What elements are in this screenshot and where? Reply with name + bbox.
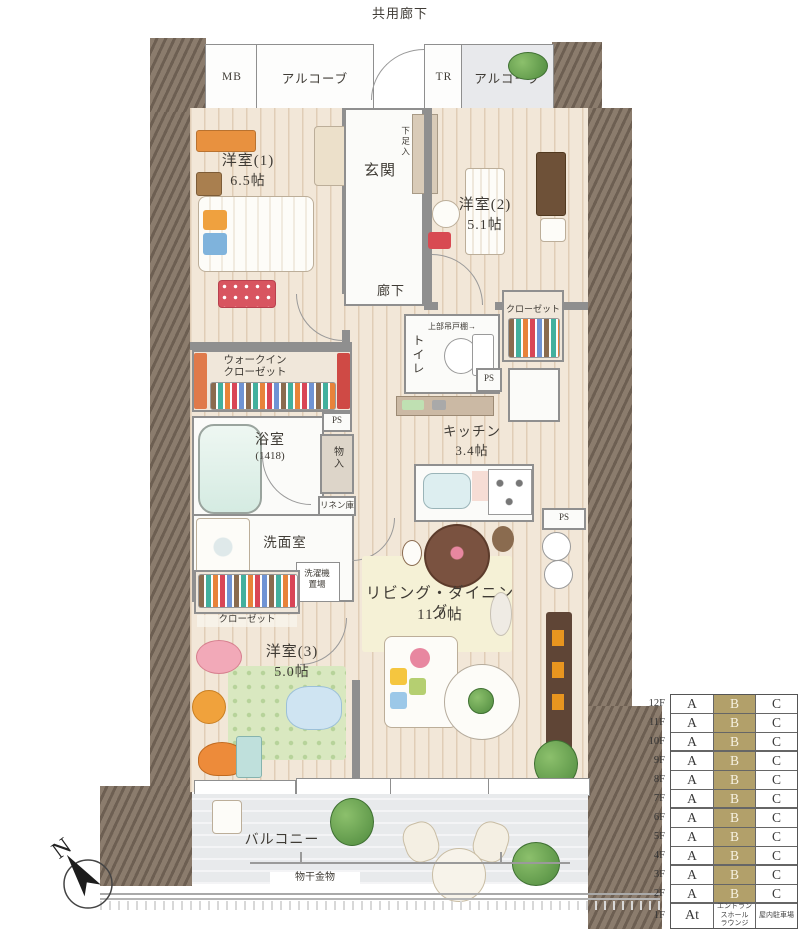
- unit-cell-12F-C: C: [756, 695, 797, 714]
- floor-label-8F: 8F: [640, 770, 667, 789]
- balcony-plant-left-illustration: [330, 798, 374, 846]
- unit-cell-6F-B: B: [714, 809, 756, 828]
- ps-toilet-label: PS: [476, 373, 502, 384]
- drying-tick-2: [500, 852, 502, 864]
- dining-stool-illustration: [402, 540, 422, 566]
- unit-cell-12F-B: B: [714, 695, 756, 714]
- closet-w2-label: クローゼット: [502, 304, 564, 315]
- kitchen-shelf-item2-illustration: [432, 400, 446, 410]
- unit-cell-10F-C: C: [756, 733, 797, 752]
- kitchen-stove-illustration: [488, 469, 532, 515]
- floor-table-floors: 12F11F10F9F8F7F6F5F4F3F2F1F: [640, 694, 667, 929]
- unit-cell-6F-A: A: [671, 809, 714, 828]
- unit-cell-2F-B: B: [714, 885, 756, 904]
- floor-label-5F: 5F: [640, 827, 667, 846]
- western2-size: 5.1帖: [430, 217, 540, 235]
- toilet-label: トイレ: [410, 334, 425, 376]
- unit-cell-4F-A: A: [671, 847, 714, 866]
- wic-label-2: クローゼット: [200, 366, 310, 379]
- floor-label-10F: 10F: [640, 732, 667, 751]
- unit-cell-9F-C: C: [756, 752, 797, 771]
- speaker-illustration: [236, 736, 262, 778]
- unit-cell-11F-B: B: [714, 714, 756, 733]
- ps-kitchen-label: PS: [542, 512, 586, 523]
- toy-blue-illustration: [286, 686, 342, 730]
- storage-label: 物入: [330, 446, 343, 470]
- floor-label-1F: 1F: [640, 903, 667, 927]
- floor-label-7F: 7F: [640, 789, 667, 808]
- wall-top-right: [552, 42, 602, 114]
- western1-label: 洋室(1): [193, 152, 303, 171]
- balcony-edge-line-1: [100, 893, 660, 895]
- western3-size: 5.0帖: [237, 664, 347, 682]
- entrance-label: 玄関: [344, 162, 416, 181]
- unit-cell-11F-C: C: [756, 714, 797, 733]
- kitchen-shelf-item1-illustration: [402, 400, 424, 410]
- kitchen-label: キッチン: [417, 424, 527, 441]
- cushion-green-illustration: [409, 678, 426, 695]
- compass-circle: [64, 860, 112, 908]
- laundry-label-2: 置場: [296, 579, 338, 590]
- unit-cell-1F-C: 屋内駐車場: [756, 904, 797, 928]
- unit-cell-3F-B: B: [714, 866, 756, 885]
- toilet-shelf-note: 上部吊戸棚→: [414, 322, 490, 332]
- alcove-left: アルコーブ: [256, 44, 374, 110]
- unit-cell-3F-C: C: [756, 866, 797, 885]
- trunk-room: TR: [424, 44, 464, 110]
- alcove-plant-illustration: [508, 52, 548, 80]
- table-plant-illustration: [468, 688, 494, 714]
- unit-cell-6F-C: C: [756, 809, 797, 828]
- floor-label-2F: 2F: [640, 884, 667, 903]
- laundry-label-1: 洗濯機: [296, 568, 338, 579]
- washroom-label: 洗面室: [230, 535, 340, 552]
- kitchen-sink-illustration: [423, 473, 471, 509]
- unit-cell-1F-B: エントランスホール ラウンジ: [714, 904, 756, 928]
- desk2-illustration: [536, 152, 566, 216]
- dining-table-illustration: [424, 524, 490, 588]
- shoe-cabinet-label: 下足入: [400, 126, 411, 158]
- floor-table-grid: ABCABCABCABCABCABCABCABCABCABCABCAtエントラン…: [670, 694, 798, 929]
- linen-label: リネン庫: [318, 500, 356, 511]
- dining-chair-illustration: [492, 526, 514, 552]
- closet-w2-clothes-illustration: [508, 318, 560, 358]
- wic-clothes-illustration: [210, 382, 336, 410]
- unit-cell-8F-A: A: [671, 771, 714, 790]
- unit-cell-11F-A: A: [671, 714, 714, 733]
- ps-bath-label: PS: [322, 415, 352, 426]
- unit-cell-7F-C: C: [756, 790, 797, 809]
- unit-cell-4F-B: B: [714, 847, 756, 866]
- balcony-plant-right-illustration: [512, 842, 560, 886]
- closet-w3-clothes-illustration: [198, 574, 298, 608]
- unit-cell-5F-B: B: [714, 828, 756, 847]
- wic-cabinet-right-illustration: [337, 353, 350, 409]
- unit-cell-4F-C: C: [756, 847, 797, 866]
- bathroom-label: 浴室: [218, 432, 322, 450]
- entrance-door-arc: [371, 49, 424, 100]
- balcony-edge-hatch: [100, 901, 660, 910]
- unit-cell-2F-A: A: [671, 885, 714, 904]
- drying-tick-1: [300, 852, 302, 864]
- tv-item3-illustration: [552, 694, 564, 710]
- unit-cell-10F-A: A: [671, 733, 714, 752]
- balcony-table-left-illustration: [212, 800, 242, 834]
- floor-label-4F: 4F: [640, 846, 667, 865]
- unit-cell-5F-A: A: [671, 828, 714, 847]
- kitchen-size: 3.4帖: [417, 443, 527, 459]
- balcony-edge-line-2: [100, 898, 660, 900]
- meter-box: MB: [205, 44, 259, 110]
- tv-item1-illustration: [552, 630, 564, 646]
- unit-cell-3F-A: A: [671, 866, 714, 885]
- chair-red-illustration: [428, 232, 451, 249]
- compass: N: [44, 826, 144, 926]
- meter-box-label: MB: [222, 71, 242, 83]
- wall-w3-right: [352, 680, 360, 792]
- side-table-round1-illustration: [542, 532, 571, 561]
- wall-right: [588, 108, 632, 710]
- cat-illustration: [490, 592, 512, 636]
- desk-illustration: [314, 126, 348, 186]
- wall-top-left: [150, 38, 206, 114]
- cabinet2-illustration: [540, 218, 566, 242]
- cushion-pink-illustration: [410, 648, 430, 668]
- hallway-label: 廊下: [364, 283, 418, 299]
- western2-label: 洋室(2): [430, 196, 540, 215]
- drying-rail-line: [250, 862, 570, 864]
- unit-cell-9F-A: A: [671, 752, 714, 771]
- unit-cell-7F-B: B: [714, 790, 756, 809]
- unit-cell-1F-A: At: [671, 904, 714, 928]
- trunk-room-label: TR: [436, 71, 453, 83]
- rug-illustration: [218, 280, 276, 308]
- cushion-blue-illustration: [390, 692, 407, 709]
- floor-label-3F: 3F: [640, 865, 667, 884]
- western3-label: 洋室(3): [237, 643, 347, 662]
- wall-w1-bottom: [190, 342, 352, 350]
- unit-cell-10F-B: B: [714, 733, 756, 752]
- floor-label-12F: 12F: [640, 694, 667, 713]
- closet-w3-label: クローゼット: [197, 615, 297, 627]
- unit-cell-12F-A: A: [671, 695, 714, 714]
- pillow-orange-illustration: [203, 210, 227, 230]
- alcove-left-label: アルコーブ: [282, 68, 348, 87]
- balcony-label: バルコニー: [237, 832, 327, 850]
- unit-cell-8F-B: B: [714, 771, 756, 790]
- cushion-yellow-illustration: [390, 668, 407, 685]
- side-table-round2-illustration: [544, 560, 573, 589]
- floor-label-6F: 6F: [640, 808, 667, 827]
- common-corridor-label: 共用廊下: [330, 6, 470, 22]
- unit-cell-9F-B: B: [714, 752, 756, 771]
- ball-orange-illustration: [192, 690, 226, 724]
- tv-item2-illustration: [552, 662, 564, 678]
- chair-pink-illustration: [196, 640, 242, 674]
- living-size: 11.0帖: [395, 606, 485, 625]
- drying-hardware-label: 物干金物: [270, 872, 360, 885]
- wall-left: [150, 112, 190, 792]
- floor-label-9F: 9F: [640, 751, 667, 770]
- fridge-illustration: [508, 368, 560, 422]
- unit-cell-2F-C: C: [756, 885, 797, 904]
- floor-label-11F: 11F: [640, 713, 667, 732]
- shelf-illustration: [196, 130, 256, 152]
- unit-cell-7F-A: A: [671, 790, 714, 809]
- western1-size: 6.5帖: [193, 173, 303, 191]
- unit-cell-5F-C: C: [756, 828, 797, 847]
- floor-unit-table: 12F11F10F9F8F7F6F5F4F3F2F1F ABCABCABCABC…: [640, 694, 798, 929]
- unit-cell-8F-C: C: [756, 771, 797, 790]
- pillow-blue-illustration: [203, 233, 227, 255]
- floor-plan-page: 共用廊下 MB アルコーブ TR アルコーブ 洋室(1) 6.5帖 下足入 玄関…: [0, 0, 800, 929]
